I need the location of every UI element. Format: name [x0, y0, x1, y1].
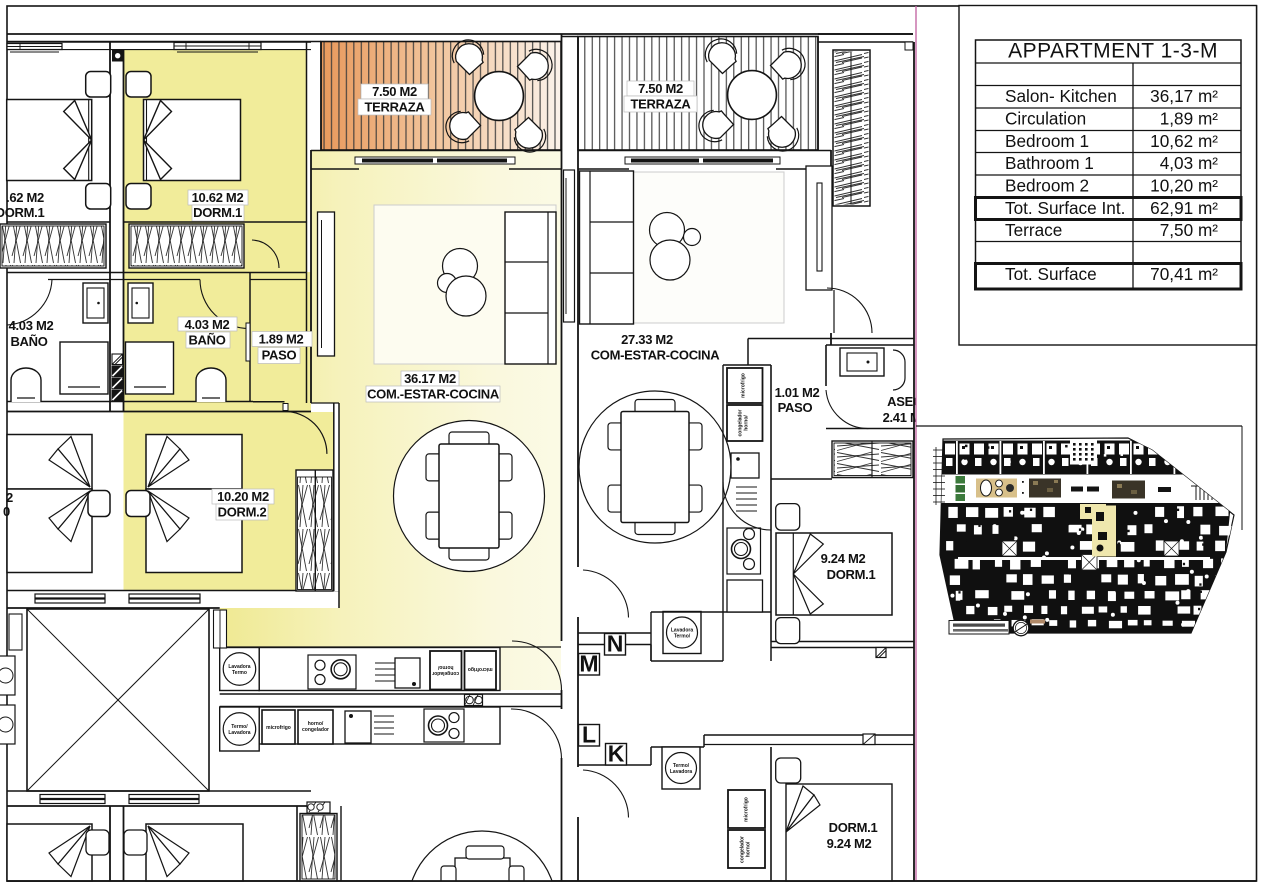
- svg-text:microfrigo: microfrigo: [468, 666, 493, 672]
- svg-text:0: 0: [3, 504, 10, 519]
- svg-text:27.33 M2: 27.33 M2: [621, 332, 673, 347]
- svg-text:62,91 m²: 62,91 m²: [1150, 198, 1218, 218]
- svg-text:BAÑO: BAÑO: [188, 333, 225, 348]
- svg-text:N: N: [607, 631, 624, 657]
- svg-text:horno/: horno/: [746, 841, 752, 857]
- svg-text:TERRAZA: TERRAZA: [630, 97, 691, 112]
- svg-text:10,62 m²: 10,62 m²: [1150, 131, 1218, 151]
- svg-text:10.62 M2: 10.62 M2: [192, 190, 244, 205]
- svg-text:TERRAZA: TERRAZA: [364, 100, 425, 115]
- svg-text:L: L: [582, 722, 596, 748]
- svg-text:horno/: horno/: [437, 664, 453, 670]
- svg-text:BAÑO: BAÑO: [10, 334, 47, 349]
- svg-text:9.24 M2: 9.24 M2: [821, 551, 866, 566]
- svg-text:1,89 m²: 1,89 m²: [1160, 109, 1219, 129]
- svg-text:PASO: PASO: [262, 348, 297, 363]
- svg-text:DORM.2: DORM.2: [218, 505, 267, 520]
- svg-text:APPARTMENT 1-3-M: APPARTMENT 1-3-M: [1008, 40, 1218, 63]
- svg-text:1.01 M2: 1.01 M2: [775, 385, 820, 400]
- svg-text:9.24 M2: 9.24 M2: [827, 836, 872, 851]
- svg-text:microfrigo: microfrigo: [741, 373, 747, 398]
- svg-text:7.50 M2: 7.50 M2: [372, 84, 417, 99]
- svg-text:36,17 m²: 36,17 m²: [1150, 86, 1218, 106]
- svg-text:COM.-ESTAR-COCINA: COM.-ESTAR-COCINA: [367, 387, 500, 402]
- svg-text:DORM.1: DORM.1: [827, 567, 876, 582]
- svg-text:DORM.1: DORM.1: [193, 205, 242, 220]
- svg-text:microfrigo: microfrigo: [266, 725, 291, 731]
- svg-text:Lavadora: Lavadora: [670, 769, 692, 775]
- svg-text:2: 2: [6, 490, 13, 505]
- svg-text:10,20 m²: 10,20 m²: [1150, 176, 1218, 196]
- svg-text:K: K: [608, 741, 625, 767]
- svg-text:Salon- Kitchen: Salon- Kitchen: [1005, 86, 1117, 106]
- svg-text:36.17 M2: 36.17 M2: [404, 371, 456, 386]
- svg-text:COM-ESTAR-COCINA: COM-ESTAR-COCINA: [591, 348, 720, 363]
- svg-text:Tot. Surface: Tot. Surface: [1005, 264, 1097, 284]
- svg-text:Lavadora: Lavadora: [228, 730, 250, 736]
- svg-text:Bedroom 1: Bedroom 1: [1005, 131, 1089, 151]
- svg-text:Tot. Surface Int.: Tot. Surface Int.: [1005, 198, 1125, 218]
- svg-text:.62 M2: .62 M2: [6, 190, 44, 205]
- svg-text:10.20 M2: 10.20 M2: [217, 489, 269, 504]
- svg-text:congelador: congelador: [302, 727, 329, 733]
- svg-text:7,50 m²: 7,50 m²: [1160, 220, 1219, 240]
- svg-text:Termo: Termo: [232, 670, 247, 676]
- svg-text:DORM.1: DORM.1: [829, 820, 878, 835]
- svg-text:4,03 m²: 4,03 m²: [1160, 153, 1219, 173]
- svg-text:Bathroom 1: Bathroom 1: [1005, 153, 1094, 173]
- svg-text:4.03 M2: 4.03 M2: [185, 317, 230, 332]
- svg-text:horno/: horno/: [744, 415, 750, 431]
- svg-text:70,41 m²: 70,41 m²: [1150, 264, 1218, 284]
- svg-text:microfrigo: microfrigo: [744, 797, 750, 822]
- svg-text:Bedroom 2: Bedroom 2: [1005, 176, 1089, 196]
- svg-text:Circulation: Circulation: [1005, 109, 1086, 129]
- svg-text:1.89 M2: 1.89 M2: [259, 332, 304, 347]
- svg-text:Terrace: Terrace: [1005, 220, 1062, 240]
- svg-text:4.03 M2: 4.03 M2: [9, 318, 54, 333]
- svg-text:DORM.1: DORM.1: [0, 205, 44, 220]
- svg-text:7.50 M2: 7.50 M2: [638, 81, 683, 96]
- svg-text:PASO: PASO: [778, 400, 813, 415]
- svg-text:M: M: [579, 651, 598, 677]
- svg-text:Termo/: Termo/: [674, 634, 691, 640]
